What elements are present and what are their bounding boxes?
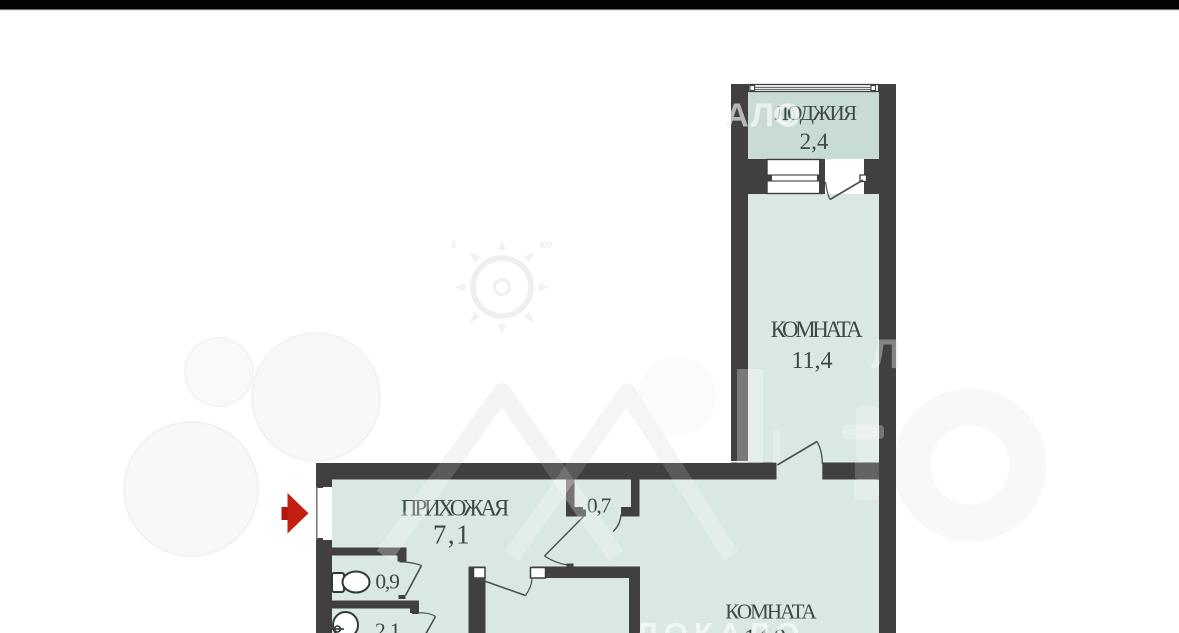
svg-text:к: к — [451, 237, 457, 251]
svg-text:0,9: 0,9 — [375, 570, 399, 594]
svg-text:11,4: 11,4 — [791, 348, 832, 374]
svg-text:2,4: 2,4 — [800, 129, 829, 154]
svg-text:ко: ко — [540, 237, 552, 251]
svg-text:ЛОКАЛО: ЛОКАЛО — [636, 616, 805, 633]
svg-text:2,1: 2,1 — [375, 619, 400, 633]
svg-text:АЛО: АЛО — [725, 97, 803, 134]
svg-text:7,1: 7,1 — [433, 520, 471, 550]
svg-text:Л: Л — [871, 330, 900, 377]
svg-text:КОМНАТА: КОМНАТА — [771, 317, 864, 342]
